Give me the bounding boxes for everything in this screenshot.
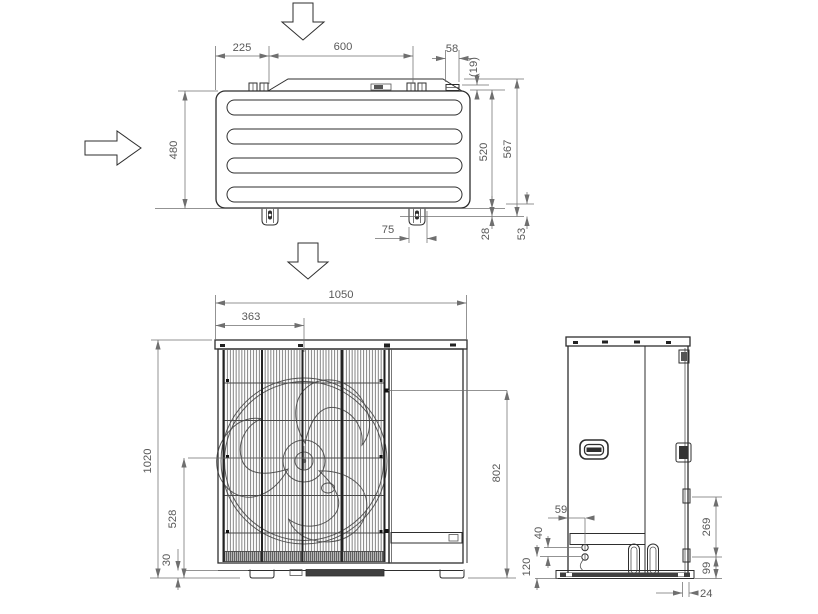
dim-front-knockout-height: 802 bbox=[388, 391, 516, 579]
front-top-plate bbox=[215, 340, 467, 349]
side-view: 59 40 120 269 99 bbox=[521, 337, 722, 600]
knockout-mark-upper bbox=[385, 389, 389, 393]
dim-label-53: 53 bbox=[516, 228, 528, 240]
front-top-plate-screws bbox=[220, 344, 456, 348]
dim-top-panel-width: 600 bbox=[269, 41, 413, 84]
dim-label-30: 30 bbox=[161, 554, 173, 566]
dim-label-1020: 1020 bbox=[142, 449, 154, 474]
dim-front-fan-center-x: 363 bbox=[216, 311, 305, 352]
dim-side-outlet-height: 99 bbox=[695, 557, 722, 579]
fan-grille bbox=[218, 349, 389, 563]
dim-top-foot-pitch: 75 bbox=[375, 211, 437, 243]
dim-top-overall-depth: 567 bbox=[464, 79, 524, 217]
dim-label-1050: 1050 bbox=[329, 289, 354, 301]
dim-label-120: 120 bbox=[521, 558, 533, 577]
dim-label-75: 75 bbox=[382, 224, 394, 236]
dim-label-269: 269 bbox=[701, 518, 713, 537]
dim-label-600: 600 bbox=[334, 41, 353, 53]
dim-label-40: 40 bbox=[533, 527, 545, 539]
dim-label-480: 480 bbox=[168, 141, 180, 160]
grille-bottom-strip bbox=[224, 552, 385, 562]
dim-side-pipe-zone: 269 bbox=[692, 497, 722, 557]
dim-top-bracket-width: 58 bbox=[432, 43, 472, 82]
dim-label-528: 528 bbox=[167, 510, 179, 529]
top-view: 225 600 58 (19) 480 bbox=[155, 41, 534, 243]
top-body-outline bbox=[216, 91, 470, 208]
pipe-outlet-lower bbox=[683, 549, 690, 562]
side-feet-brackets bbox=[629, 544, 659, 576]
dim-label-59: 59 bbox=[555, 504, 567, 516]
dim-side-hole-offset: 59 bbox=[548, 504, 595, 543]
dim-top-clip-height: (19) bbox=[462, 57, 505, 100]
pipe-outlet-upper bbox=[683, 489, 690, 503]
dim-label-58: 58 bbox=[446, 43, 458, 55]
front-service-panel bbox=[385, 349, 468, 563]
dim-top-depth: 480 bbox=[168, 91, 218, 209]
dim-label-802: 802 bbox=[491, 464, 503, 483]
dimension-drawing: 225 600 58 (19) 480 bbox=[0, 0, 818, 614]
drawing-svg: 225 600 58 (19) 480 bbox=[0, 0, 818, 614]
top-motor-mount-hatch bbox=[374, 85, 383, 89]
dim-label-28: 28 bbox=[480, 228, 492, 240]
dim-side-hole-pitch: 40 bbox=[533, 527, 581, 568]
air-direction-arrow-side-icon bbox=[85, 131, 141, 165]
dim-side-hole-height: 120 bbox=[521, 545, 558, 590]
dim-label-19: (19) bbox=[468, 57, 480, 77]
top-vent-slots bbox=[227, 100, 462, 202]
dim-top-foot-clearance: 53 bbox=[506, 192, 534, 240]
side-top-plate bbox=[566, 337, 690, 346]
dim-top-foot-height: 28 bbox=[480, 196, 495, 240]
dim-label-24: 24 bbox=[700, 588, 712, 600]
dim-label-520: 520 bbox=[478, 143, 490, 162]
air-direction-arrow-top-icon bbox=[282, 3, 324, 40]
front-view: 1050 363 1020 528 30 bbox=[142, 289, 516, 590]
side-lower-strip bbox=[570, 534, 645, 545]
dim-label-225: 225 bbox=[233, 42, 252, 54]
dim-front-overall-height: 1020 bbox=[142, 340, 212, 578]
top-clips bbox=[249, 83, 459, 91]
drain-holes bbox=[580, 544, 588, 570]
valve-cover-band bbox=[391, 533, 462, 544]
front-base bbox=[218, 570, 464, 579]
dim-label-567: 567 bbox=[502, 140, 514, 159]
dim-label-99: 99 bbox=[701, 562, 713, 574]
dim-side-base-inset: 24 bbox=[656, 582, 712, 600]
side-right-edge-details bbox=[676, 350, 691, 562]
dim-label-363: 363 bbox=[242, 311, 261, 323]
side-top-plate-screws bbox=[573, 341, 671, 345]
side-handle bbox=[580, 440, 608, 459]
top-rear-bracket bbox=[268, 79, 462, 91]
knockout-mark-lower bbox=[385, 529, 389, 533]
side-base-plate bbox=[556, 571, 694, 579]
air-direction-arrow-front-icon bbox=[288, 243, 328, 279]
side-body bbox=[568, 346, 688, 575]
